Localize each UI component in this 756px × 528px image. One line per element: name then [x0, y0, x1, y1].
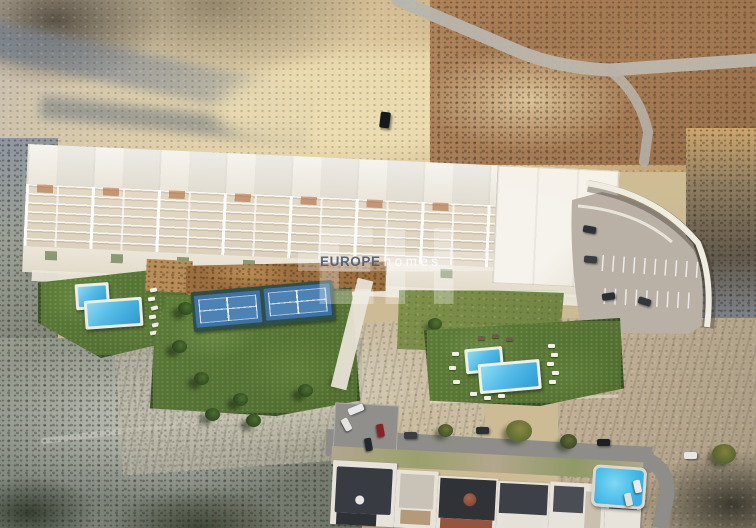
house-roof	[335, 466, 393, 515]
parked-car	[597, 439, 610, 446]
pool-main-section	[477, 359, 541, 394]
sun-lounger	[547, 362, 554, 366]
court-lines	[198, 295, 258, 324]
sun-lounger	[492, 334, 499, 338]
existing-house	[496, 481, 551, 528]
watermark-brand-light: homes	[384, 254, 442, 269]
sun-lounger	[498, 394, 505, 398]
street-tree	[506, 420, 532, 442]
sun-lounger	[552, 371, 559, 375]
sun-lounger	[449, 366, 456, 370]
dirt-road-path	[398, 0, 756, 70]
house-roof	[336, 512, 377, 526]
sun-lounger	[452, 352, 459, 356]
sun-lounger	[549, 380, 556, 384]
patio	[400, 510, 431, 526]
sun-lounger	[453, 380, 460, 384]
existing-house	[436, 476, 499, 528]
palm-tree	[194, 372, 209, 385]
palm-tree	[298, 384, 313, 397]
paddle-court-1	[194, 290, 263, 328]
patio	[502, 515, 543, 528]
watermark-brand-bold: EUROPE	[320, 254, 381, 269]
right-pool	[464, 343, 544, 395]
house-roof	[499, 483, 549, 515]
parked-car	[476, 427, 489, 434]
left-pool	[74, 280, 145, 331]
sun-lounger	[478, 336, 485, 340]
sun-lounger	[484, 396, 491, 400]
pool-water	[481, 362, 539, 391]
sun-lounger	[548, 344, 555, 348]
sun-lounger	[470, 392, 477, 396]
watermark-bar: EUROPE homes	[298, 252, 494, 271]
pool-main-section	[84, 297, 144, 330]
street-tree	[438, 424, 453, 437]
pool-water	[87, 300, 140, 327]
palm-tree	[233, 393, 248, 406]
dirt-road-branch	[610, 70, 648, 162]
palm-tree	[205, 408, 220, 421]
street-tree	[712, 444, 736, 464]
sun-lounger	[551, 353, 558, 357]
house-roof	[399, 474, 435, 510]
street-tree	[560, 434, 577, 449]
house-roof	[553, 486, 584, 514]
car-on-dirt-track	[379, 111, 391, 128]
parked-car	[404, 432, 417, 439]
existing-house	[330, 460, 397, 527]
tiled-roof	[440, 518, 493, 528]
parked-car	[584, 255, 598, 263]
palm-tree	[178, 302, 193, 315]
aerial-site-photo: EH EUROPE homes	[0, 0, 756, 528]
palm-tree	[172, 340, 187, 353]
parked-car	[684, 452, 697, 459]
palm-tree	[246, 414, 261, 427]
sun-lounger	[506, 337, 513, 341]
existing-house	[394, 469, 439, 528]
